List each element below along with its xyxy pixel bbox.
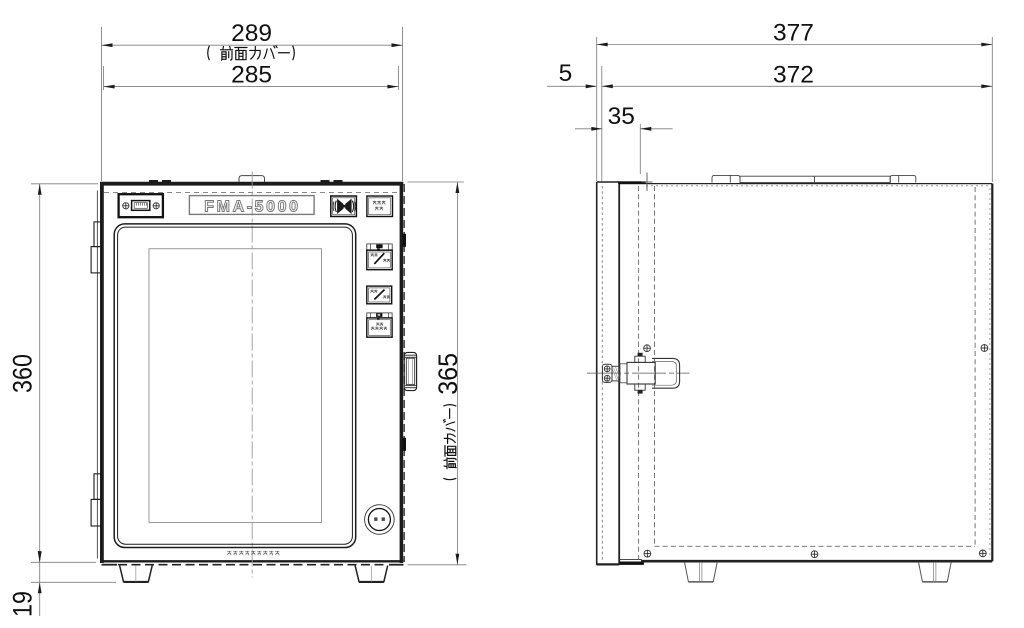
svg-text:285: 285 (231, 62, 272, 89)
svg-text:FMA-5000: FMA-5000 (204, 198, 300, 215)
svg-text:377: 377 (773, 20, 814, 47)
svg-text:289: 289 (231, 20, 272, 47)
svg-text:19: 19 (8, 591, 38, 617)
svg-text:35: 35 (608, 103, 635, 130)
svg-text:372: 372 (773, 61, 814, 88)
svg-text:365: 365 (432, 353, 463, 395)
svg-text:5: 5 (559, 60, 573, 87)
svg-text:360: 360 (8, 354, 38, 393)
